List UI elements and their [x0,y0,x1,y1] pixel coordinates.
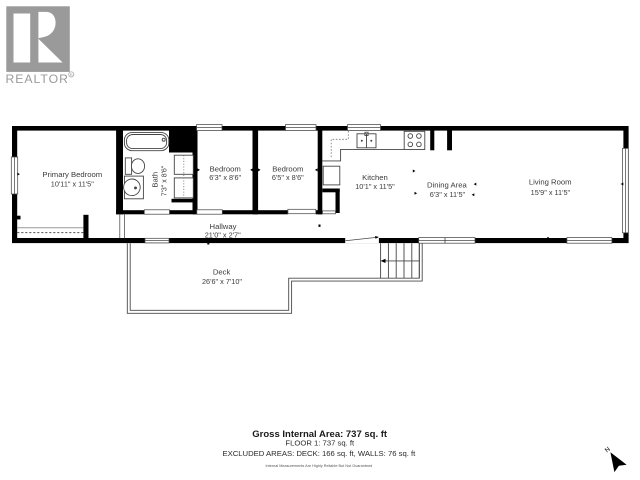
svg-text:REALTOR: REALTOR [6,72,69,86]
svg-text:6'3" x 11'5": 6'3" x 11'5" [430,190,466,199]
svg-text:7'3" x 8'6": 7'3" x 8'6" [162,165,169,196]
svg-text:Internal Measurements Are High: Internal Measurements Are Highly Reliabl… [266,464,373,468]
svg-text:21'0" x 2'7": 21'0" x 2'7" [205,230,241,239]
svg-text:10'11" x 11'5": 10'11" x 11'5" [51,179,94,188]
svg-text:Bedroom: Bedroom [210,165,241,174]
svg-text:Primary Bedroom: Primary Bedroom [42,170,102,179]
svg-text:FLOOR 1: 737 sq. ft: FLOOR 1: 737 sq. ft [285,438,355,447]
svg-text:R: R [70,73,73,77]
svg-text:10'1" x 11'5": 10'1" x 11'5" [355,182,395,191]
svg-text:Dining Area: Dining Area [427,181,467,190]
svg-text:EXCLUDED AREAS: DECK: 166 sq.: EXCLUDED AREAS: DECK: 166 sq. ft, WALLS:… [222,449,416,458]
svg-text:Kitchen: Kitchen [362,173,388,182]
svg-text:6'5" x 8'6": 6'5" x 8'6" [272,173,304,182]
svg-text:15'9" x 11'5": 15'9" x 11'5" [531,188,571,197]
svg-text:Bedroom: Bedroom [272,165,303,174]
svg-text:Deck: Deck [213,267,231,276]
svg-text:Living Room: Living Room [529,178,572,187]
svg-text:6'3" x 8'6": 6'3" x 8'6" [209,173,241,182]
svg-text:26'6" x 7'10": 26'6" x 7'10" [202,277,242,286]
svg-text:Bath: Bath [151,172,160,188]
